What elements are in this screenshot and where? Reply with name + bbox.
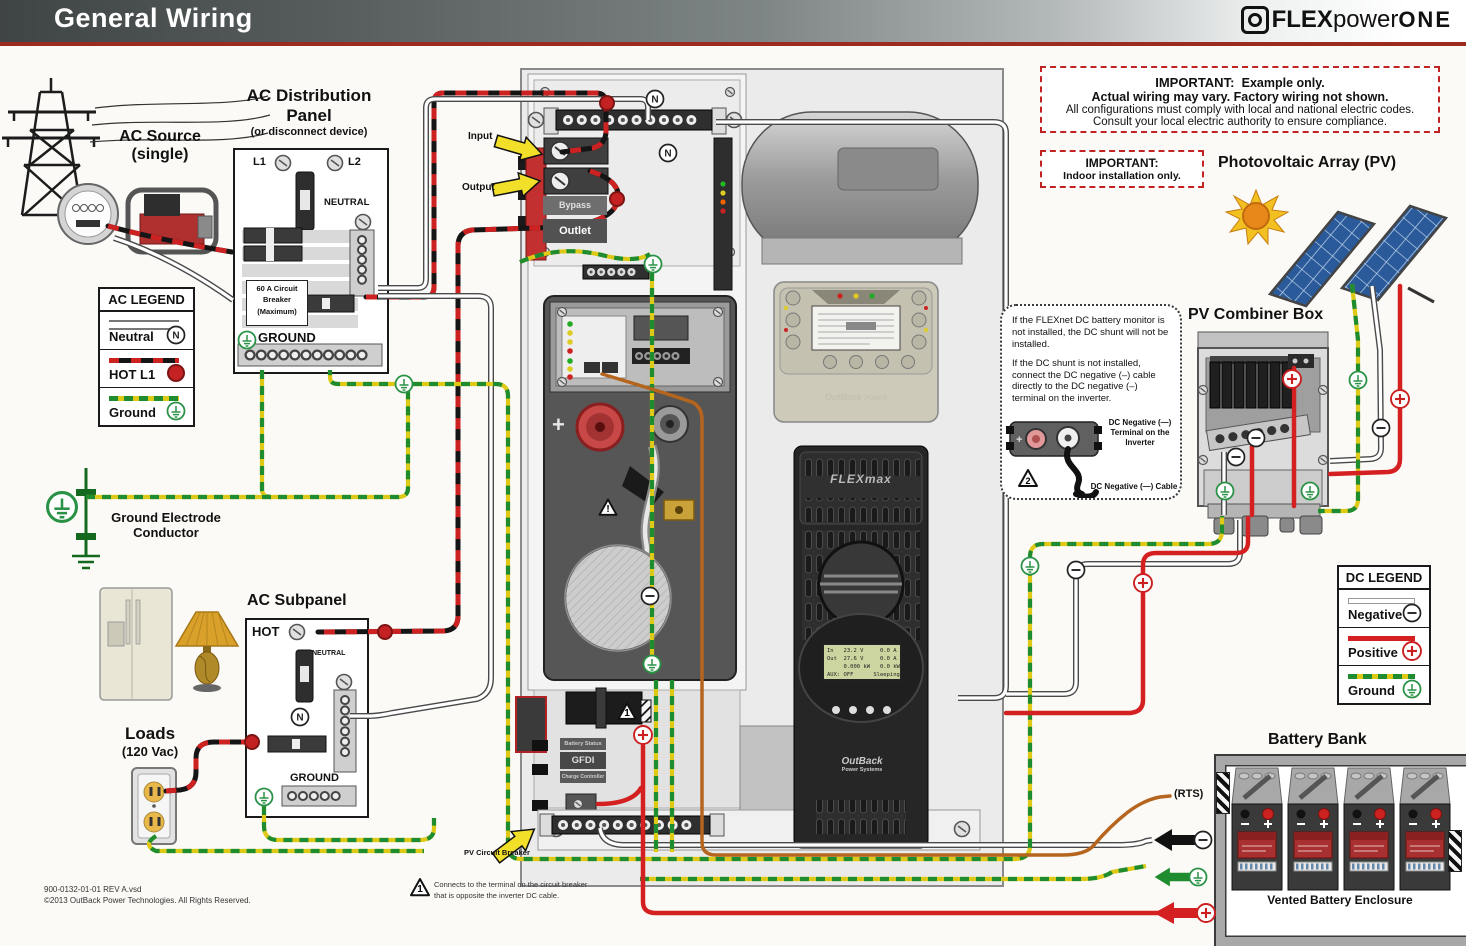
combiner-internals bbox=[1198, 332, 1328, 536]
flexpower-one-logo: FLEX power ONE bbox=[1241, 6, 1452, 34]
loads-graphic bbox=[100, 588, 238, 844]
gfdi-label: GFDI bbox=[560, 752, 606, 769]
flexmax-brand: OutBack Power Systems bbox=[824, 756, 900, 773]
outlet-label: Outlet bbox=[543, 219, 607, 243]
enclosure-hatch-left bbox=[1216, 772, 1230, 814]
subpanel-ground-label: GROUND bbox=[290, 772, 339, 784]
enclosure-hatch-right bbox=[1448, 830, 1462, 872]
pv-combiner-title: PV Combiner Box bbox=[1188, 306, 1323, 324]
subpanel-hot-label: HOT bbox=[252, 624, 279, 639]
pv-array-graphic bbox=[1226, 190, 1446, 306]
ac-legend: AC LEGEND Neutral N HOT L1 Ground bbox=[98, 287, 195, 427]
dc-legend-negative-row: Negative bbox=[1339, 590, 1429, 627]
flexnet-note-p2: If the DC shunt is not installed, connec… bbox=[1012, 358, 1170, 406]
svg-text:N: N bbox=[172, 331, 179, 342]
brand-flex: FLEX bbox=[1272, 6, 1333, 34]
flexnet-note-p1: If the FLEXnet DC battery monitor is not… bbox=[1012, 315, 1170, 351]
dc-legend-positive-row: Positive bbox=[1339, 627, 1429, 665]
dc-legend-title: DC LEGEND bbox=[1339, 567, 1429, 590]
mate3-logo: OutBack POWER bbox=[800, 392, 912, 402]
battery-status-label: Battery Status bbox=[560, 738, 606, 750]
vented-enclosure-label: Vented Battery Enclosure bbox=[1238, 893, 1442, 907]
acdp-l2-label: L2 bbox=[348, 156, 361, 168]
ac-dist-title: AC Distribution Panel (or disconnect dev… bbox=[225, 86, 393, 138]
outback-logo-icon bbox=[1241, 6, 1269, 34]
battery-bank-title: Battery Bank bbox=[1268, 731, 1367, 749]
ac-legend-neutral-row: Neutral N bbox=[100, 312, 193, 349]
dc-ground-badge-icon bbox=[1402, 679, 1422, 699]
ac-legend-hot-row: HOT L1 bbox=[100, 349, 193, 387]
ac-legend-title: AC LEGEND bbox=[100, 289, 193, 312]
charge-controller-label: Charge Controller bbox=[560, 771, 606, 783]
note1-text: Connects to the terminal on the circuit … bbox=[434, 880, 587, 901]
shunt-cable-label: DC Negative (—) Cable bbox=[1084, 482, 1184, 492]
ac-subpanel-box bbox=[245, 618, 369, 818]
shunt-terminal-label: DC Negative (—)Terminal on theInverter bbox=[1102, 418, 1178, 448]
ground-badge-icon bbox=[166, 401, 186, 421]
page-title: General Wiring bbox=[54, 3, 253, 34]
pv-circuit-breaker-label: PV Circuit Breaker bbox=[464, 848, 530, 857]
flexmax-logo: FLEXmax bbox=[806, 472, 916, 486]
svg-text:+: + bbox=[1016, 434, 1022, 446]
brand-power: power bbox=[1333, 6, 1398, 34]
important-notice-indoor: IMPORTANT: Indoor installation only. bbox=[1040, 150, 1204, 188]
ground-electrode-label: Ground ElectrodeConductor bbox=[96, 510, 236, 540]
bypass-label: Bypass bbox=[543, 196, 607, 215]
general-wiring-page: { "header": {"title": "General Wiring", … bbox=[0, 0, 1466, 935]
negative-badge-icon bbox=[1402, 603, 1422, 623]
battery-enclosure-box bbox=[1216, 756, 1466, 946]
dc-legend: DC LEGEND Negative Positive Ground bbox=[1337, 565, 1431, 705]
footer-text: 900-0132-01-01 REV A.vsd ©2013 OutBack P… bbox=[44, 884, 251, 906]
dc-legend-ground-row: Ground bbox=[1339, 665, 1429, 703]
brand-one: ONE bbox=[1398, 7, 1452, 33]
output-label: Output bbox=[462, 182, 495, 193]
ground-electrode-graphic bbox=[48, 468, 100, 568]
rts-label: (RTS) bbox=[1174, 788, 1203, 800]
important-notice-main: IMPORTANT: Example only. Actual wiring m… bbox=[1040, 66, 1440, 133]
acdp-l1-label: L1 bbox=[253, 156, 266, 168]
ac-subpanel-title: AC Subpanel bbox=[247, 592, 347, 610]
svg-text:2: 2 bbox=[1025, 476, 1030, 486]
positive-badge-icon bbox=[1402, 641, 1422, 661]
hot-badge-icon bbox=[166, 363, 186, 383]
acdp-ground-label: GROUND bbox=[258, 330, 316, 345]
ac-source-title: AC Source (single) bbox=[100, 128, 220, 164]
warning-triangle-note1: 1 bbox=[411, 879, 429, 895]
acdp-breaker-label: 60 A CircuitBreaker(Maximum) bbox=[246, 280, 308, 326]
loads-title: Loads (120 Vac) bbox=[108, 724, 192, 759]
flexmax-lcd: In 23.2 V 0.0 A Out 27.6 V 0.0 A 0.000 k… bbox=[822, 643, 902, 681]
subpanel-neutral-label: NEUTRAL bbox=[312, 650, 345, 657]
pv-array-title: Photovoltaic Array (PV) bbox=[1218, 154, 1396, 172]
input-label: Input bbox=[468, 131, 492, 142]
acdp-neutral-label: NEUTRAL bbox=[324, 197, 369, 208]
ac-legend-ground-row: Ground bbox=[100, 387, 193, 425]
flexnet-note: If the FLEXnet DC battery monitor is not… bbox=[1000, 304, 1182, 500]
neutral-badge-icon: N bbox=[166, 325, 186, 345]
svg-text:1: 1 bbox=[417, 884, 423, 895]
